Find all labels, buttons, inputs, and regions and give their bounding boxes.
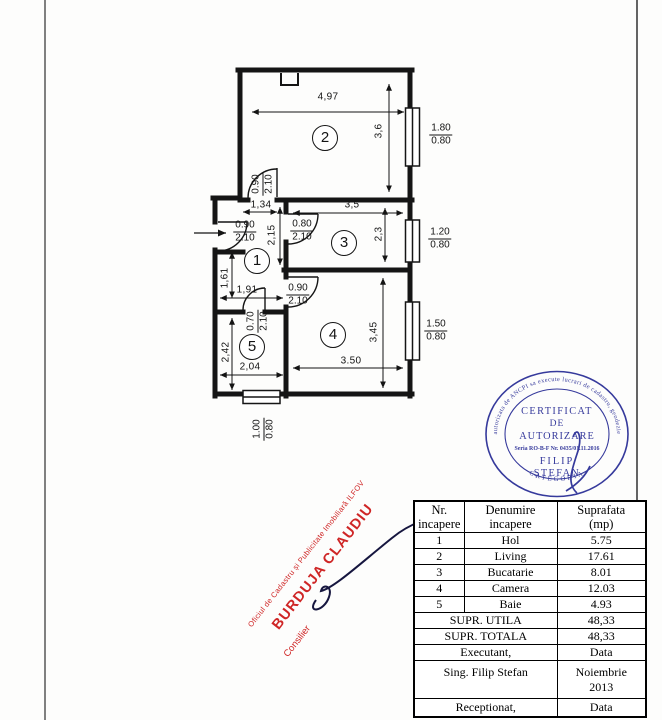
label-door-entry: 0.90 2.10 [233,220,256,245]
dim-camera-width: 3.50 [341,356,362,367]
label-window-camera: 1.50 0.80 [424,319,447,344]
label-door-camera: 0.90 2.10 [286,283,309,308]
room-circle-camera: 4 [320,322,346,348]
dim-hall-door-width: 1,34 [251,200,272,211]
cell-name: Camera [464,581,557,597]
cell-nr: 3 [414,565,464,581]
executant-name: Sing. Filip Stefan [414,661,557,699]
cell-nr: 5 [414,597,464,613]
label-window-kitchen: 1.20 0.80 [428,227,451,252]
window-bath [243,391,280,404]
stamp-name-line1: FILIP [540,456,575,467]
room-circle-living: 2 [312,125,338,151]
label-window-bath: 1.00 0.80 [252,417,277,440]
dim-kitchen-height: 2,3 [374,227,385,242]
cell-name: Baie [464,597,557,613]
cell-nr: 2 [414,549,464,565]
scanned-floorplan-document: { "floorplan": { "rooms": { "r1": "1", "… [0,0,662,720]
executant-row: Executant, Data [414,645,646,661]
executant-date: Noiembrie 2013 [557,661,646,699]
table-row: 5 Baie 4.93 [414,597,646,613]
table-header-row: Nr. incapere Denumire incapere Suprafata… [414,501,646,533]
supr-utila-label: SUPR. UTILA [414,613,557,629]
window-camera [406,302,420,360]
supr-totala-row: SUPR. TOTALA 48,33 [414,629,646,645]
dim-hall-height1: 2,15 [267,225,278,246]
round-certification-stamp: autorizata de ANCPI sa execute lucrari d… [481,369,633,501]
cell-area: 8.01 [557,565,646,581]
header-suprafata: Suprafata (mp) [557,501,646,533]
stamp-title-line2: DE [550,419,565,429]
label-door-living: 0.90 2.10 [251,172,276,195]
executant-label: Executant, [414,645,557,661]
dim-hall-width: 1,91 [237,285,258,296]
receptionat-label: Receptionat, [414,699,557,717]
label-window-living: 1.80 0.80 [429,123,452,148]
cell-area: 5.75 [557,533,646,549]
room-circle-baie: 5 [239,334,265,360]
stamp-serial: Seria RO-B-F Nr. 0435/01.11.2016 [515,446,600,452]
cell-area: 17.61 [557,549,646,565]
supr-utila-value: 48,33 [557,613,646,629]
cell-area: 4.93 [557,597,646,613]
window-kitchen [406,220,420,262]
dim-hall-height2: 1,61 [220,268,231,289]
supr-utila-row: SUPR. UTILA 48,33 [414,613,646,629]
table-row: 2 Living 17.61 [414,549,646,565]
label-door-bath: 0.70 2.10 [246,309,271,332]
cell-area: 12.03 [557,581,646,597]
header-denumire: Denumire incapere [464,501,557,533]
header-nr: Nr. incapere [414,501,464,533]
area-table: Nr. incapere Denumire incapere Suprafata… [413,500,647,718]
dim-bath-height: 2,42 [221,342,232,363]
room-circle-hol: 1 [244,248,270,274]
wall-notch [281,73,298,85]
cell-name: Living [464,549,557,565]
stamp-title-line3: AUTORIZARE [519,431,595,442]
dim-camera-height: 3,45 [369,322,380,343]
cell-nr: 4 [414,581,464,597]
table-row: 3 Bucatarie 8.01 [414,565,646,581]
dim-living-height: 3,6 [374,124,385,139]
supr-totala-value: 48,33 [557,629,646,645]
receptionat-row: Receptionat, Data [414,699,646,717]
cell-nr: 1 [414,533,464,549]
table-row: 1 Hol 5.75 [414,533,646,549]
executant-signature-row: Sing. Filip Stefan Noiembrie 2013 [414,661,646,699]
stamp-title-line1: CERTIFICAT [521,406,593,417]
room-circle-bucatarie: 3 [331,230,357,256]
data-label-2: Data [557,699,646,717]
dim-bath-width: 2,04 [240,362,261,373]
data-label: Data [557,645,646,661]
dim-kitchen-width: 3,5 [345,200,360,211]
table-row: 4 Camera 12.03 [414,581,646,597]
supr-totala-label: SUPR. TOTALA [414,629,557,645]
cell-name: Bucatarie [464,565,557,581]
dim-living-width: 4,97 [318,92,339,103]
cell-name: Hol [464,533,557,549]
stamp-name-line2: ȘTEFAN [534,468,581,479]
window-living [406,108,420,166]
label-door-kitchen: 0.80 2.10 [290,219,313,244]
